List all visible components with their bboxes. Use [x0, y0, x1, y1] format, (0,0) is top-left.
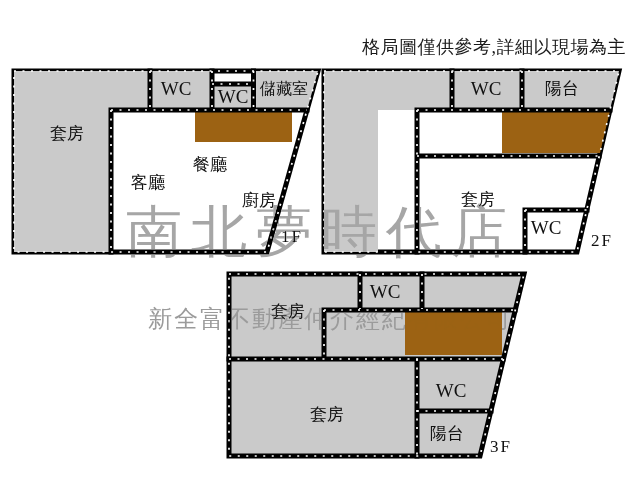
room-label-2f-wc-bottom: WC	[531, 218, 562, 237]
room-label-3f-suite-top: 套房	[271, 303, 305, 320]
room-label-3f-wc-top: WC	[370, 282, 401, 301]
room-label-1f-dining: 餐廳	[193, 156, 227, 173]
room-label-1f-suite: 套房	[50, 125, 84, 142]
disclaimer-text: 格局圖僅供參考,詳細以現場為主	[362, 35, 626, 59]
floor-label-3f: 3F	[490, 438, 512, 455]
room-label-1f-living: 客廳	[131, 174, 165, 191]
room-label-1f-wc2: WC	[218, 87, 249, 106]
room-label-2f-wc-top: WC	[471, 79, 502, 98]
floor-label-1f: 1F	[281, 228, 303, 245]
stairs-block-3f	[405, 312, 502, 355]
room-label-2f-suite: 套房	[461, 191, 495, 208]
room-label-3f-wc-right: WC	[436, 381, 467, 400]
room-label-1f-wc1: WC	[161, 79, 192, 98]
room-label-3f-suite-bottom: 套房	[310, 406, 344, 423]
room-label-1f-kitchen: 廚房	[242, 192, 276, 209]
room-label-2f-balcony: 陽台	[545, 80, 579, 97]
room-label-1f-storage: 儲藏室	[260, 81, 308, 97]
floor-label-2f: 2F	[591, 232, 613, 249]
room-label-3f-balcony: 陽台	[430, 425, 464, 442]
stairs-block-2f	[502, 111, 610, 153]
floorplan-canvas: 格局圖僅供參考,詳細以現場為主 套房 WC WC 儲藏室 餐廳 客廳 廚房 1F…	[0, 0, 640, 480]
stairs-block-1f	[195, 112, 292, 142]
